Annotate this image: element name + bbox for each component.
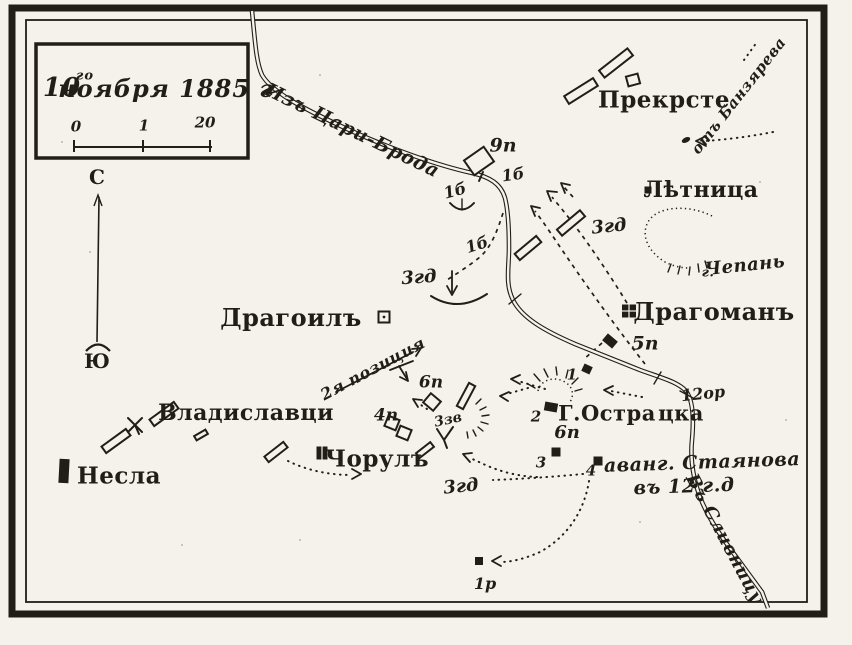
map-canvas <box>0 0 852 645</box>
battery-check-3zv <box>437 427 453 448</box>
battery-3gd-west <box>431 271 487 304</box>
unit-block-4p <box>396 426 411 441</box>
village-marker-letnitsa <box>645 187 652 194</box>
unit-filled-3 <box>552 448 561 457</box>
unit-filled-banzyarev <box>681 136 691 144</box>
unit-bar <box>150 402 179 426</box>
routes-dashed <box>447 186 645 364</box>
unit-bar-small <box>194 430 208 441</box>
unit-filled-avangard <box>594 457 603 466</box>
legend-box <box>36 44 248 158</box>
village-marker-nesla <box>58 459 69 483</box>
unit-bar <box>264 442 287 462</box>
route-arrowheads <box>352 136 706 566</box>
position-2-pointer <box>336 348 421 392</box>
hill-ostra <box>528 367 582 402</box>
unit-filled-2 <box>544 401 558 412</box>
building-marker <box>626 74 640 87</box>
map-page: 10гоноября 1885 г0120СЮИзъ Цари-Бродаотъ… <box>0 0 852 645</box>
routes-dotted <box>288 42 773 562</box>
hill-chorul-knoll <box>467 399 489 438</box>
hill-chepan <box>645 208 712 275</box>
unit-filled-1 <box>581 363 593 374</box>
battery-symbols <box>336 199 487 448</box>
unit-filled-1r <box>475 557 483 565</box>
unit-bar <box>102 429 131 453</box>
battery-arc-1b <box>450 199 474 210</box>
unit-bar <box>457 383 475 409</box>
windmill-marker <box>128 418 142 434</box>
unit-bar <box>416 442 434 458</box>
unit-bar <box>564 78 598 104</box>
unit-filled-5p <box>602 333 618 348</box>
unit-bar <box>557 210 585 235</box>
compass-needle <box>86 195 110 351</box>
unit-bar <box>515 236 542 260</box>
road-main <box>252 11 768 608</box>
unit-block-4p <box>384 416 399 431</box>
unit-bar <box>599 48 633 77</box>
